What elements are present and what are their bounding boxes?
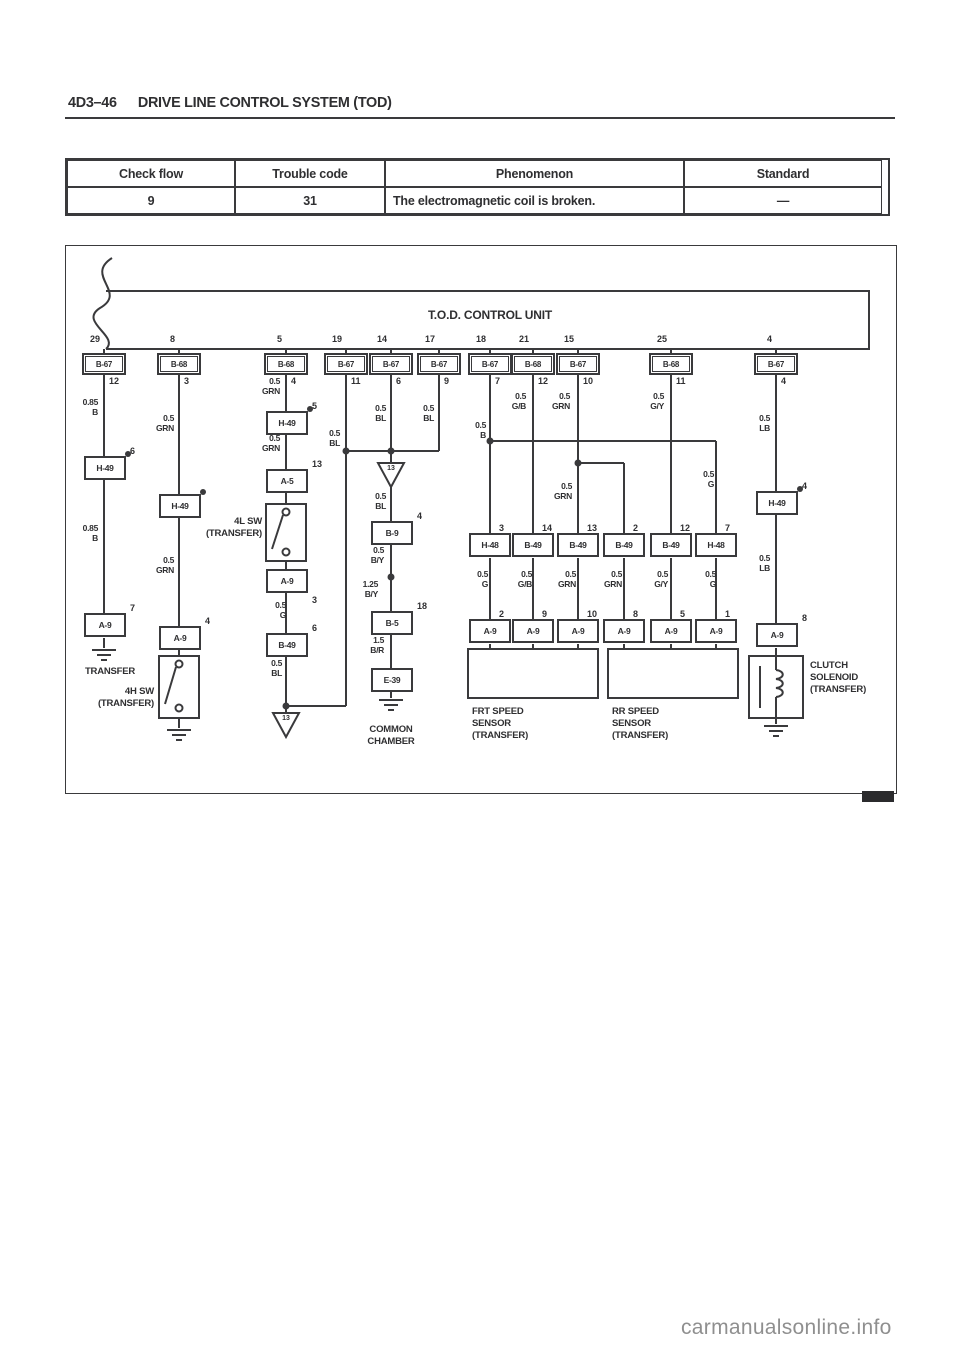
connector-box: A-9 xyxy=(650,619,692,643)
connector-box: H-48 xyxy=(469,533,511,557)
wire-label: 0.5 LB xyxy=(736,414,770,434)
wiring-diagram-frame: T.O.D. CONTROL UNIT 29 8 5 19 14 17 18 2… xyxy=(65,245,897,794)
connector-box: H-48 xyxy=(695,533,737,557)
wire-label: 0.5 G/B xyxy=(492,392,526,412)
pin-number: 4 xyxy=(781,376,805,386)
pin-number: 12 xyxy=(680,523,704,533)
connector-box: B-67 xyxy=(556,353,600,375)
connector-box: A-9 xyxy=(266,569,308,593)
connector-label: B-67 xyxy=(96,360,112,369)
pin-number: 8 xyxy=(802,613,826,623)
frt-speed-sensor-box xyxy=(468,649,598,698)
wire-label: 0.5 GRN xyxy=(588,570,622,590)
page-number: 4D3–46 xyxy=(68,94,117,111)
wire-label: 0.5 GRN xyxy=(246,434,280,454)
wire-label: 0.5 GRN xyxy=(538,482,572,502)
col-header-phenomenon: Phenomenon xyxy=(385,160,684,187)
connector-box: A-9 xyxy=(469,619,511,643)
figure-code-badge xyxy=(862,791,894,802)
wire-label: 0.5 BL xyxy=(248,659,282,679)
wire-label: 0.5 G xyxy=(682,570,716,590)
pin-number: 2 xyxy=(633,523,657,533)
connector-box: A-9 xyxy=(557,619,599,643)
pin-number: 3 xyxy=(312,595,336,605)
connector-box: B-5 xyxy=(371,611,413,635)
wire-label: 0.5 BL xyxy=(400,404,434,424)
connector-box: B-49 xyxy=(650,533,692,557)
pin-number: 6 xyxy=(396,376,420,386)
pin-number: 13 xyxy=(587,523,611,533)
page-title: DRIVE LINE CONTROL SYSTEM (TOD) xyxy=(138,94,392,111)
phenomenon-value: The electromagnetic coil is broken. xyxy=(385,187,684,214)
pin-number: 18 xyxy=(417,601,441,611)
pin-number: 12 xyxy=(538,376,562,386)
connector-label: B-68 xyxy=(663,360,679,369)
pin-number: 4 xyxy=(802,481,826,491)
wire-label: 0.5 GRN xyxy=(140,556,174,576)
continuation-arrow-id: 13 xyxy=(384,465,398,472)
common-chamber-label: COMMON CHAMBER xyxy=(346,724,436,748)
pin-number: 19 xyxy=(318,334,342,344)
pin-number: 13 xyxy=(312,459,336,469)
connector-label: B-67 xyxy=(431,360,447,369)
wire-label: 0.5 G xyxy=(680,470,714,490)
switch-4l-label: 4L SW (TRANSFER) xyxy=(172,516,262,540)
rr-speed-sensor-label: RR SPEED SENSOR (TRANSFER) xyxy=(612,706,732,742)
connector-label: B-67 xyxy=(570,360,586,369)
col-header-standard: Standard xyxy=(684,160,882,187)
wire-label: 0.5 G/Y xyxy=(630,392,664,412)
pin-number: 6 xyxy=(130,446,154,456)
pin-number: 14 xyxy=(542,523,566,533)
connector-label: B-67 xyxy=(768,360,784,369)
wire-label: 0.5 G/Y xyxy=(634,570,668,590)
frt-speed-sensor-label: FRT SPEED SENSOR (TRANSFER) xyxy=(472,706,592,742)
connector-box: H-49 xyxy=(266,411,308,435)
pin-number: 11 xyxy=(351,376,375,386)
pin-number: 7 xyxy=(725,523,749,533)
connector-box: B-68 xyxy=(264,353,308,375)
wire-label: 0.5 G/B xyxy=(498,570,532,590)
pin-number: 3 xyxy=(184,376,208,386)
rr-speed-sensor-box xyxy=(608,649,738,698)
connector-box: A-9 xyxy=(512,619,554,643)
connector-label: B-67 xyxy=(338,360,354,369)
wire-label: 0.5 G xyxy=(252,601,286,621)
watermark: carmanualsonline.info xyxy=(681,1316,892,1340)
wire-label: 1.5 B/R xyxy=(350,636,384,656)
wire-label: 0.5 GRN xyxy=(140,414,174,434)
connector-box: B-68 xyxy=(649,353,693,375)
connector-box: B-68 xyxy=(511,353,555,375)
transfer-ground-label: TRANSFER xyxy=(74,666,146,678)
pin-number: 7 xyxy=(130,603,154,613)
wire-label: 0.85 B xyxy=(64,398,98,418)
pin-number: 4 xyxy=(205,616,229,626)
connector-label: B-68 xyxy=(525,360,541,369)
check-flow-value: 9 xyxy=(67,187,235,214)
pin-number: 18 xyxy=(462,334,486,344)
page-header: 4D3–46DRIVE LINE CONTROL SYSTEM (TOD) xyxy=(68,94,392,111)
wire-label: 0.5 G xyxy=(454,570,488,590)
connector-box: H-49 xyxy=(159,494,201,518)
header-rule xyxy=(65,117,895,119)
connector-box: B-67 xyxy=(82,353,126,375)
pin-number: 15 xyxy=(550,334,574,344)
pin-number: 14 xyxy=(363,334,387,344)
pin-number: 4 xyxy=(417,511,441,521)
col-header-check-flow: Check flow xyxy=(67,160,235,187)
continuation-arrow-id: 13 xyxy=(279,715,293,722)
pin-number: 8 xyxy=(633,609,657,619)
connector-box: B-68 xyxy=(157,353,201,375)
connector-box: B-67 xyxy=(369,353,413,375)
pin-number: 8 xyxy=(151,334,175,344)
connector-box: B-67 xyxy=(754,353,798,375)
switch-4l-symbol xyxy=(266,504,306,561)
pin-number: 9 xyxy=(542,609,566,619)
connector-box: A-9 xyxy=(84,613,126,637)
wire-label: 0.5 GRN xyxy=(542,570,576,590)
manual-page: 4D3–46DRIVE LINE CONTROL SYSTEM (TOD) Ch… xyxy=(0,0,960,1358)
wire-label: 0.5 BL xyxy=(352,492,386,512)
pin-number: 4 xyxy=(291,376,315,386)
pin-number: 5 xyxy=(680,609,704,619)
connector-box: A-9 xyxy=(603,619,645,643)
connector-box: A-9 xyxy=(756,623,798,647)
control-unit-title: T.O.D. CONTROL UNIT xyxy=(400,308,580,322)
connector-box: B-49 xyxy=(266,633,308,657)
col-header-trouble-code: Trouble code xyxy=(235,160,385,187)
pin-number: 21 xyxy=(505,334,529,344)
pin-number: 11 xyxy=(676,376,700,386)
pin-number: 29 xyxy=(76,334,100,344)
wire-label: 0.5 B/Y xyxy=(350,546,384,566)
trouble-code-value: 31 xyxy=(235,187,385,214)
standard-value: — xyxy=(684,187,882,214)
connector-box: B-67 xyxy=(324,353,368,375)
connector-box: B-67 xyxy=(417,353,461,375)
trouble-code-table: Check flow Trouble code Phenomenon Stand… xyxy=(65,158,890,216)
pin-number: 7 xyxy=(495,376,519,386)
connector-box: A-9 xyxy=(159,626,201,650)
pin-number: 5 xyxy=(258,334,282,344)
wire-label: 0.85 B xyxy=(64,524,98,544)
connector-box: H-49 xyxy=(84,456,126,480)
pin-number: 1 xyxy=(725,609,749,619)
pin-number: 17 xyxy=(411,334,435,344)
clutch-solenoid-label: CLUTCH SOLENOID (TRANSFER) xyxy=(810,660,894,696)
connector-label: B-68 xyxy=(278,360,294,369)
connector-box: B-49 xyxy=(512,533,554,557)
connector-box: A-5 xyxy=(266,469,308,493)
switch-4h-symbol xyxy=(159,656,199,718)
switch-4h-label: 4H SW (TRANSFER) xyxy=(66,686,154,710)
connector-box: B-67 xyxy=(468,353,512,375)
connector-box: E-39 xyxy=(371,668,413,692)
connector-box: B-49 xyxy=(557,533,599,557)
pin-number: 5 xyxy=(312,401,336,411)
pin-number: 25 xyxy=(643,334,667,344)
connector-label: B-67 xyxy=(383,360,399,369)
connector-label: B-68 xyxy=(171,360,187,369)
connector-box: B-49 xyxy=(603,533,645,557)
connector-box: H-49 xyxy=(756,491,798,515)
pin-number: 6 xyxy=(312,623,336,633)
pin-number: 10 xyxy=(587,609,611,619)
wire-label: 1.25 B/Y xyxy=(344,580,378,600)
wire-label: 0.5 BL xyxy=(352,404,386,424)
wire-label: 0.5 BL xyxy=(306,429,340,449)
clutch-solenoid-symbol xyxy=(749,656,803,718)
connector-label: B-67 xyxy=(482,360,498,369)
pin-number: 9 xyxy=(444,376,468,386)
pin-number: 4 xyxy=(748,334,772,344)
junction-dots xyxy=(125,406,803,710)
wire-label: 0.5 LB xyxy=(736,554,770,574)
pin-number: 2 xyxy=(499,609,523,619)
wire-label: 0.5 B xyxy=(452,421,486,441)
connector-box: B-9 xyxy=(371,521,413,545)
wire-label: 0.5 GRN xyxy=(536,392,570,412)
pin-number: 3 xyxy=(499,523,523,533)
pin-number: 10 xyxy=(583,376,607,386)
connector-box: A-9 xyxy=(695,619,737,643)
pin-number: 12 xyxy=(109,376,133,386)
wire-label: 0.5 GRN xyxy=(246,377,280,397)
